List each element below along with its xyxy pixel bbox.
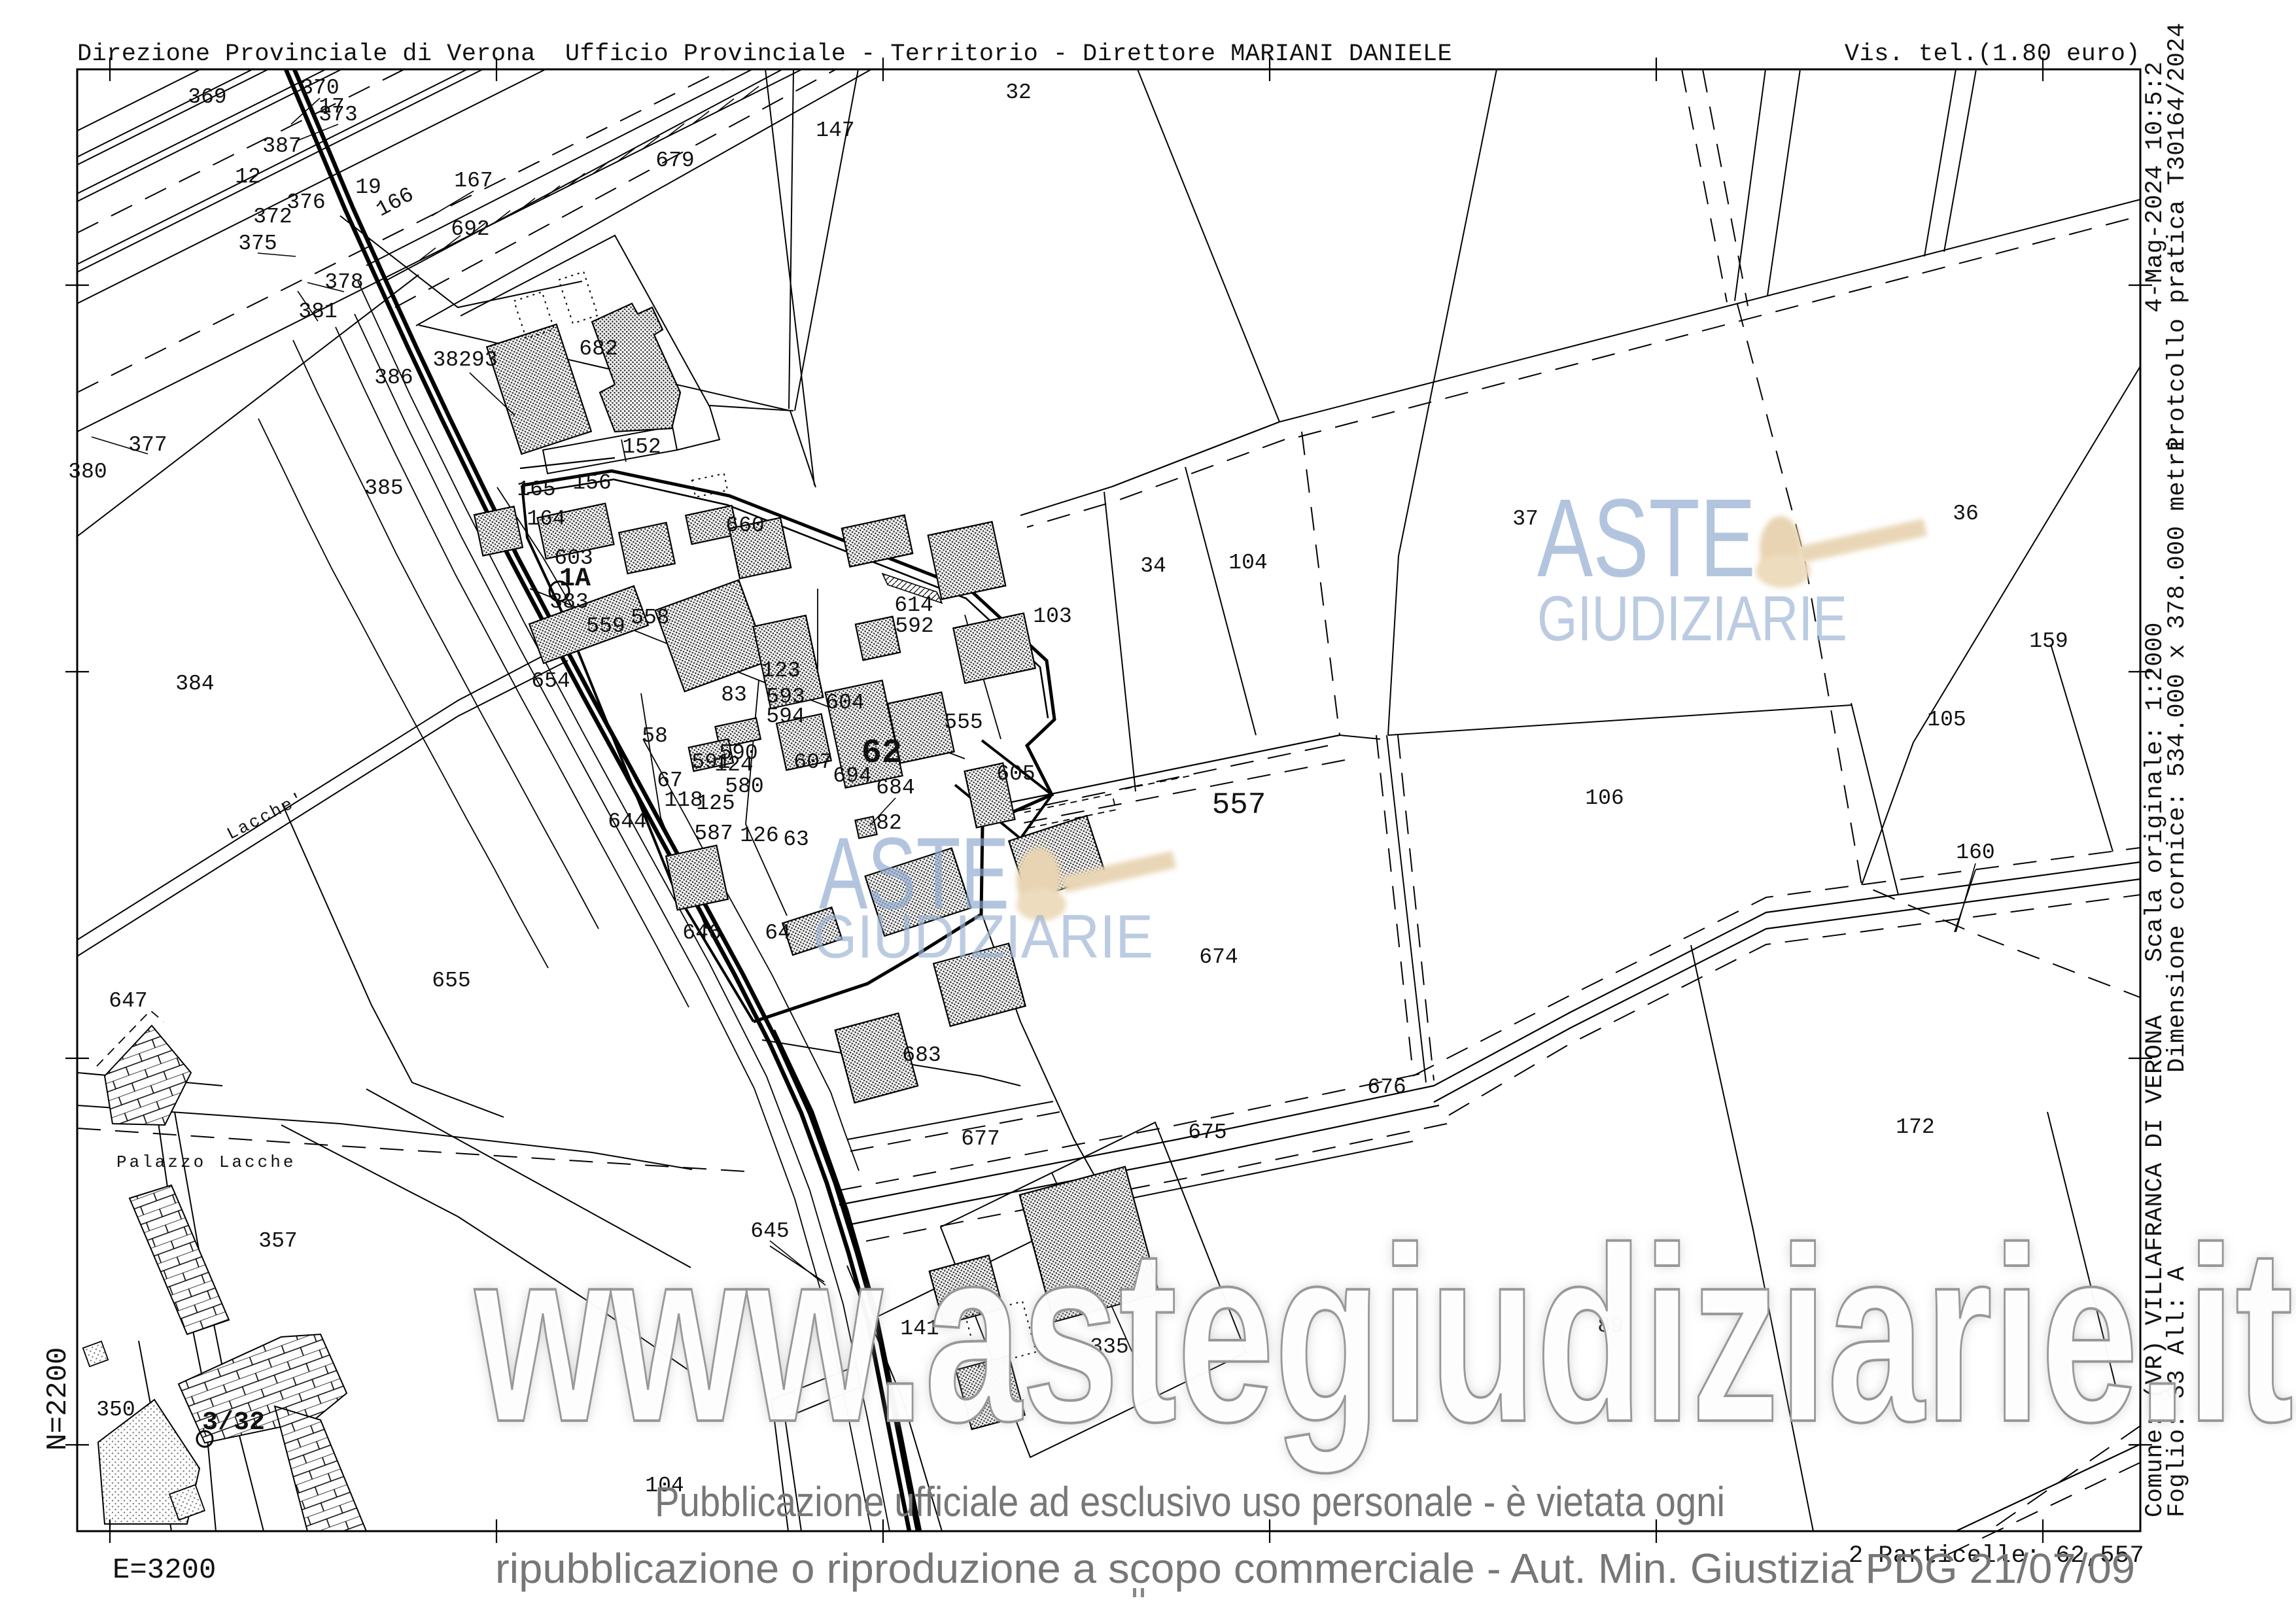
svg-text:36: 36	[1953, 502, 1979, 526]
svg-text:N=2200: N=2200	[42, 1347, 75, 1451]
svg-text:83: 83	[721, 683, 747, 707]
svg-text:558: 558	[631, 606, 669, 630]
svg-text:384: 384	[175, 672, 214, 696]
svg-text:Direzione Provinciale di Veron: Direzione Provinciale di Verona Ufficio …	[77, 41, 1452, 68]
svg-text:387: 387	[262, 134, 301, 158]
svg-text:373: 373	[319, 103, 357, 127]
svg-text:607: 607	[793, 750, 832, 774]
svg-text:62: 62	[861, 734, 902, 772]
svg-text:385: 385	[364, 476, 403, 500]
svg-text:682: 682	[579, 337, 617, 361]
svg-text:126: 126	[740, 823, 778, 848]
svg-text:644: 644	[608, 810, 646, 834]
svg-text:103: 103	[1033, 604, 1071, 629]
svg-text:587: 587	[694, 822, 733, 846]
svg-text:Protcollo pratica T30164/2024: Protcollo pratica T30164/2024	[2164, 22, 2191, 451]
svg-text:679: 679	[655, 148, 694, 173]
svg-text:105: 105	[1927, 708, 1966, 732]
svg-text:Vis. tel.(1.80 euro): Vis. tel.(1.80 euro)	[1845, 41, 2140, 68]
svg-text:152: 152	[622, 435, 661, 459]
svg-text:156: 156	[572, 471, 611, 495]
svg-text:124: 124	[714, 753, 753, 777]
svg-text:376: 376	[287, 190, 325, 215]
svg-text:www.astegiudiziarie.it: www.astegiudiziarie.it	[472, 1196, 2293, 1475]
svg-text:104: 104	[1228, 551, 1267, 575]
svg-text:167: 167	[454, 169, 493, 193]
svg-text:378: 378	[324, 270, 363, 294]
svg-text:557: 557	[1212, 788, 1266, 822]
svg-text:19: 19	[355, 175, 381, 199]
svg-text:38293: 38293	[432, 348, 497, 372]
svg-text:555: 555	[944, 710, 983, 735]
svg-text:Dimensione cornice: 534.000 x: Dimensione cornice: 534.000 x 378.000 me…	[2164, 437, 2191, 1073]
svg-text:675: 675	[1188, 1120, 1226, 1145]
svg-text:64: 64	[765, 921, 791, 945]
svg-text:12: 12	[235, 165, 261, 189]
svg-text:647: 647	[109, 989, 147, 1013]
svg-text:172: 172	[1896, 1115, 1934, 1139]
svg-text:386: 386	[374, 366, 413, 390]
svg-text:357: 357	[258, 1229, 297, 1253]
svg-text:660: 660	[725, 513, 764, 538]
svg-text:34: 34	[1140, 554, 1166, 578]
svg-text:ASTE: ASTE	[1537, 476, 1756, 600]
svg-text:3/32: 3/32	[202, 1408, 265, 1438]
svg-text:677: 677	[961, 1127, 1000, 1151]
svg-text:GIUDIZIARIE: GIUDIZIARIE	[813, 902, 1153, 971]
svg-text:Pubblicazione ufficiale ad esc: Pubblicazione ufficiale ad esclusivo uso…	[655, 1478, 1725, 1525]
svg-text:164: 164	[527, 507, 565, 531]
svg-text:654: 654	[531, 669, 570, 693]
svg-text:604: 604	[826, 691, 864, 715]
svg-text:Palazzo Lacche: Palazzo Lacche	[116, 1152, 296, 1172]
svg-text:605: 605	[996, 762, 1035, 786]
svg-text:63: 63	[783, 827, 809, 852]
svg-text:ripubblicazione o riproduzione: ripubblicazione o riproduzione a scopo c…	[495, 1545, 2135, 1592]
svg-text:369: 369	[188, 85, 226, 109]
svg-text:160: 160	[1956, 840, 1994, 865]
svg-text:684: 684	[876, 776, 914, 800]
svg-text:375: 375	[238, 232, 277, 256]
svg-text:559: 559	[586, 614, 625, 638]
svg-text:125: 125	[696, 791, 735, 816]
svg-text:58: 58	[642, 724, 668, 748]
svg-text:350: 350	[96, 1398, 135, 1422]
svg-text:147: 147	[816, 118, 854, 143]
svg-text:692: 692	[451, 217, 489, 241]
svg-text:646: 646	[682, 921, 721, 945]
svg-text:159: 159	[2029, 629, 2068, 653]
svg-text:655: 655	[432, 969, 470, 993]
svg-text:106: 106	[1585, 786, 1624, 810]
svg-text:GIUDIZIARIE: GIUDIZIARIE	[1537, 583, 1847, 654]
svg-text:37: 37	[1512, 507, 1539, 531]
svg-text:594: 594	[766, 704, 805, 729]
svg-text:123: 123	[761, 659, 800, 683]
svg-text:683: 683	[902, 1043, 941, 1067]
svg-text:1A: 1A	[559, 564, 591, 594]
svg-text:381: 381	[298, 300, 337, 324]
svg-text:380: 380	[68, 460, 107, 484]
svg-text:674: 674	[1199, 945, 1238, 969]
svg-text:676: 676	[1367, 1075, 1406, 1099]
svg-text:165: 165	[517, 477, 555, 502]
svg-text:E=3200: E=3200	[113, 1554, 216, 1587]
svg-text:32: 32	[1005, 80, 1032, 105]
svg-text:592: 592	[895, 614, 933, 638]
